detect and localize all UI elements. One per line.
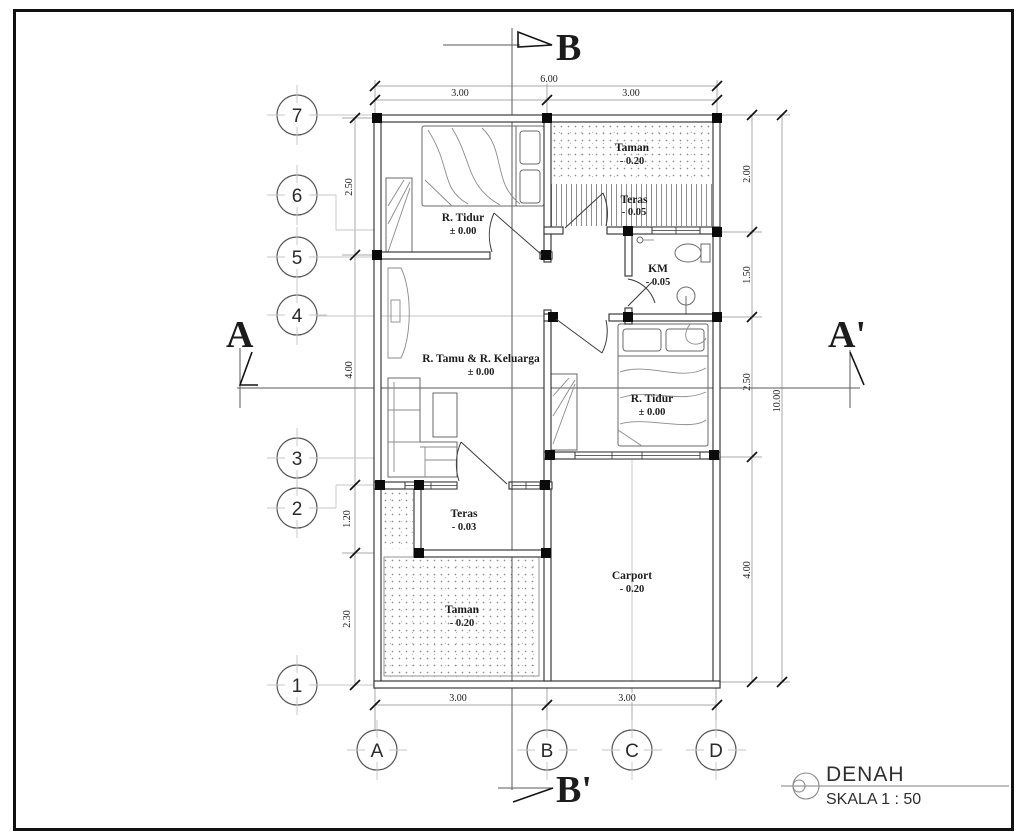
- sheet-border: [13, 9, 1014, 831]
- floor-plan-sheet: 6.00 3.00 3.00 3.00 3.00 2.50 4.00 1.20 …: [0, 0, 1024, 838]
